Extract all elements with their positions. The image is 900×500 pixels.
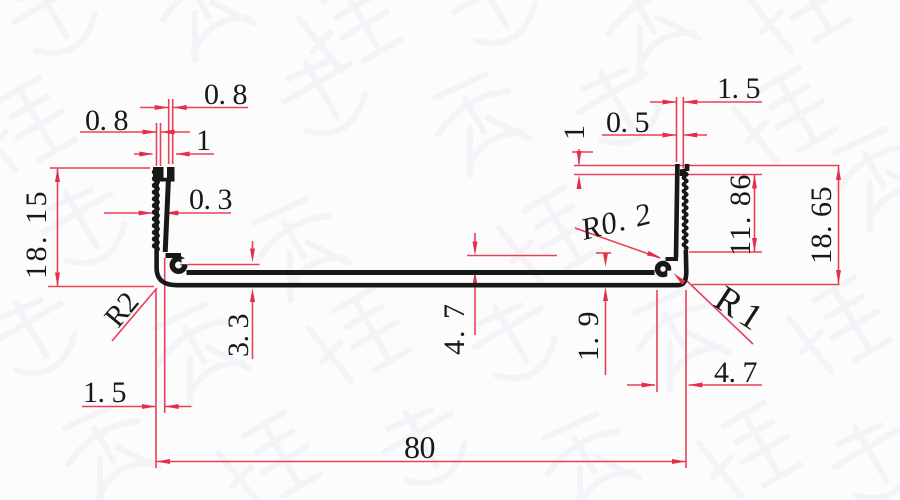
svg-text:4. 7: 4. 7 — [438, 302, 471, 355]
svg-text:80: 80 — [404, 429, 435, 465]
svg-text:18. 65: 18. 65 — [805, 186, 838, 264]
svg-text:R1: R1 — [707, 278, 774, 341]
svg-text:1. 9: 1. 9 — [572, 310, 605, 361]
svg-text:0. 8: 0. 8 — [85, 104, 128, 137]
svg-text:1: 1 — [196, 124, 211, 157]
svg-text:1. 5: 1. 5 — [83, 376, 126, 409]
svg-text:1: 1 — [558, 126, 591, 141]
svg-text:R0. 2: R0. 2 — [576, 195, 655, 247]
svg-text:0. 5: 0. 5 — [606, 106, 649, 139]
svg-text:11. 86: 11. 86 — [724, 173, 757, 256]
svg-text:0. 3: 0. 3 — [189, 183, 232, 216]
svg-text:R2: R2 — [98, 286, 145, 333]
svg-text:18. 15: 18. 15 — [20, 189, 53, 279]
svg-text:1. 5: 1. 5 — [717, 72, 760, 105]
svg-text:4. 7: 4. 7 — [714, 356, 758, 389]
svg-text:0. 8: 0. 8 — [204, 78, 247, 111]
svg-text:3. 3: 3. 3 — [222, 314, 255, 357]
